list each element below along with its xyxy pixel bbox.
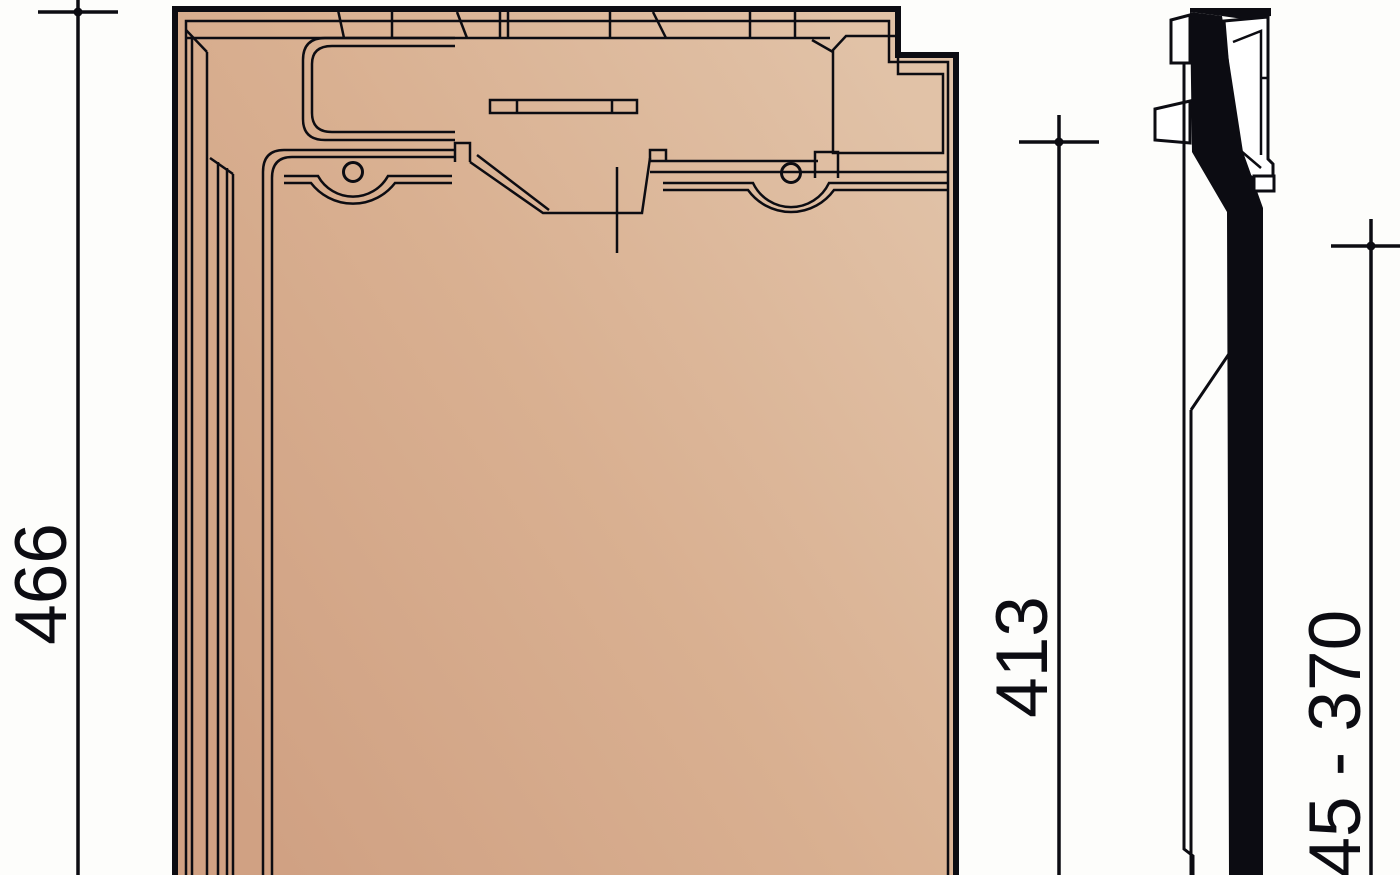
upper-nib [1171,15,1190,63]
dimension-dot [74,8,83,17]
tile-technical-drawing: 466 413 345 - 370 [0,0,1400,875]
side-profile-view [1155,8,1274,875]
dimension-label-batten: 345 - 370 [1295,610,1376,875]
dimension-overall-length: 466 [1,0,118,875]
dimension-dot [1055,138,1064,147]
tile-body [175,9,956,875]
dimension-cover-length: 413 [982,115,1099,875]
drawing-canvas: 466 413 345 - 370 [0,0,1400,875]
batten-box [1254,176,1274,191]
front-view [175,9,956,875]
dimension-batten-range: 345 - 370 [1295,219,1400,875]
dimension-label-cover: 413 [982,596,1063,718]
dimension-dot [1367,242,1376,251]
dimension-label-overall: 466 [1,523,82,645]
underside-contour [1191,348,1233,410]
